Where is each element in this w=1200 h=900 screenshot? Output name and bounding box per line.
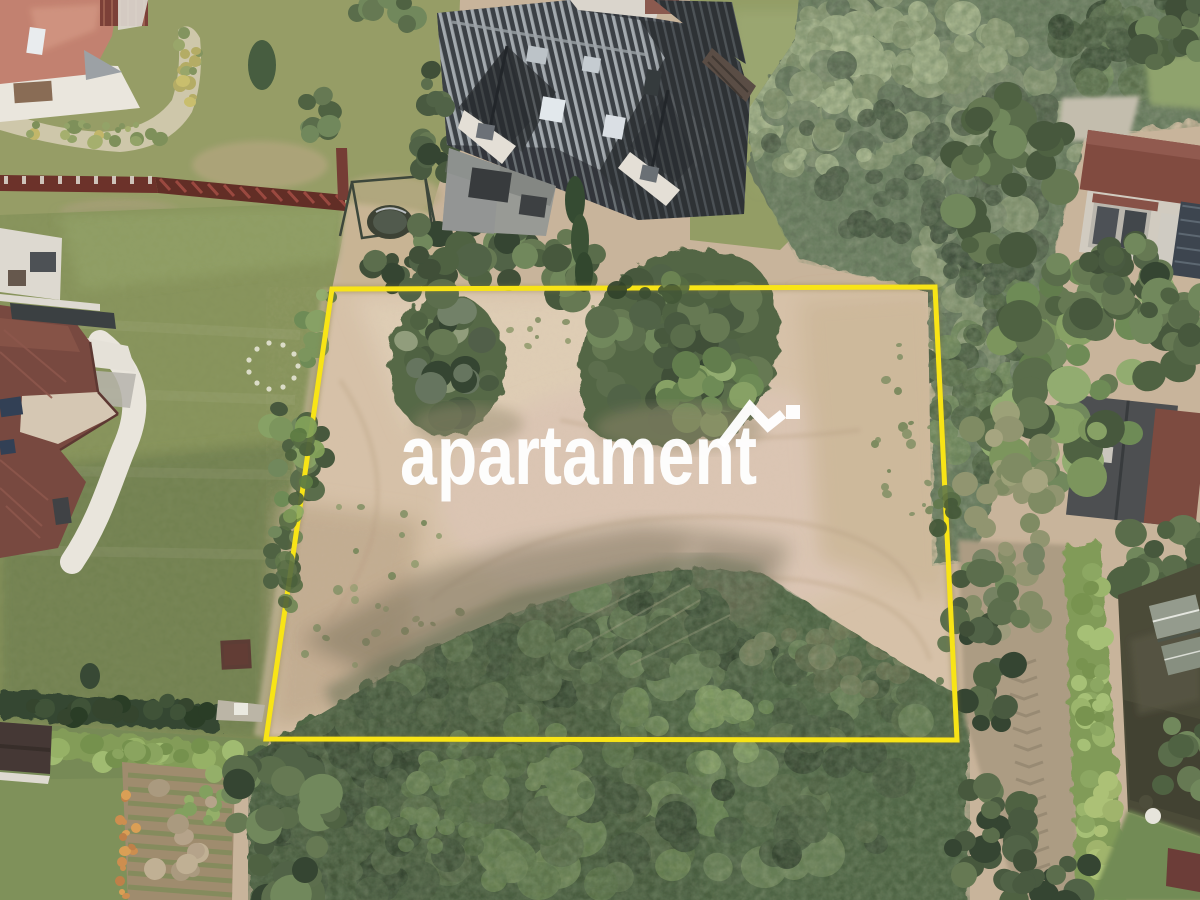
svg-text:apartament: apartament <box>400 408 757 502</box>
